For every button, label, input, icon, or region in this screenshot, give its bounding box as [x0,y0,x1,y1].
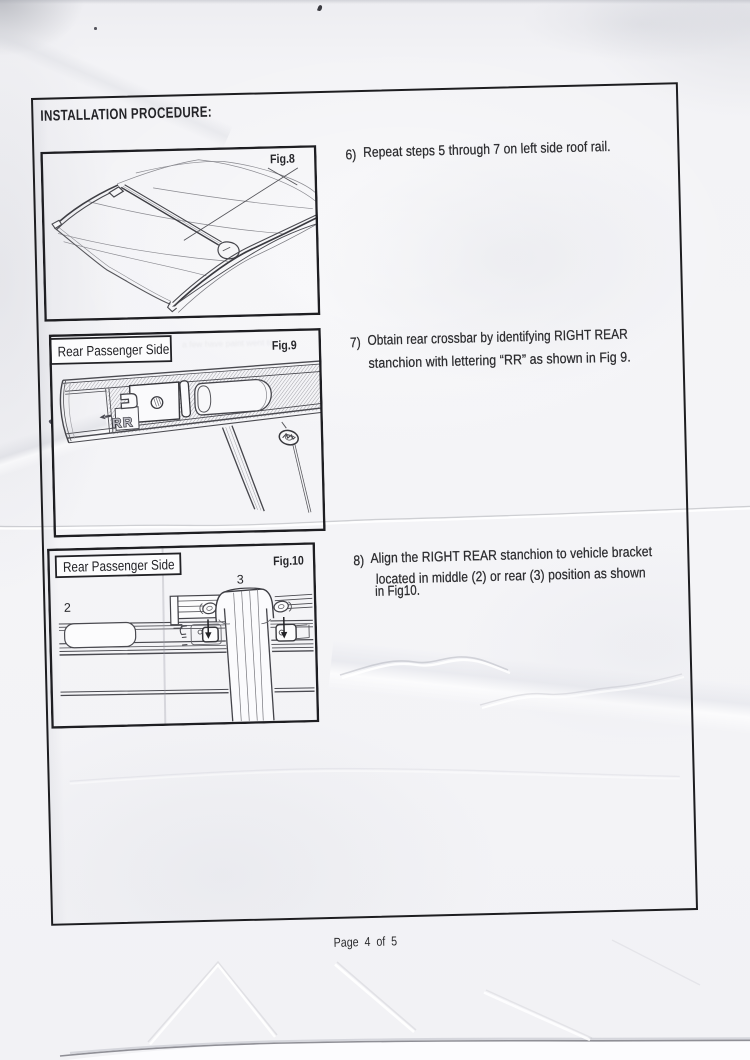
svg-text:Fig.10: Fig.10 [273,553,304,568]
svg-text:Fig.9: Fig.9 [271,338,297,353]
svg-text:RR: RR [111,413,134,430]
svg-text:a few have paint went to t: a few have paint went to t [181,336,278,348]
svg-text:Rear Passenger Side: Rear Passenger Side [57,340,169,359]
svg-text:Rear Passenger Side: Rear Passenger Side [63,555,175,574]
svg-text:3: 3 [237,572,244,586]
svg-text:2: 2 [64,600,71,614]
svg-text:Fig.8: Fig.8 [270,152,296,167]
